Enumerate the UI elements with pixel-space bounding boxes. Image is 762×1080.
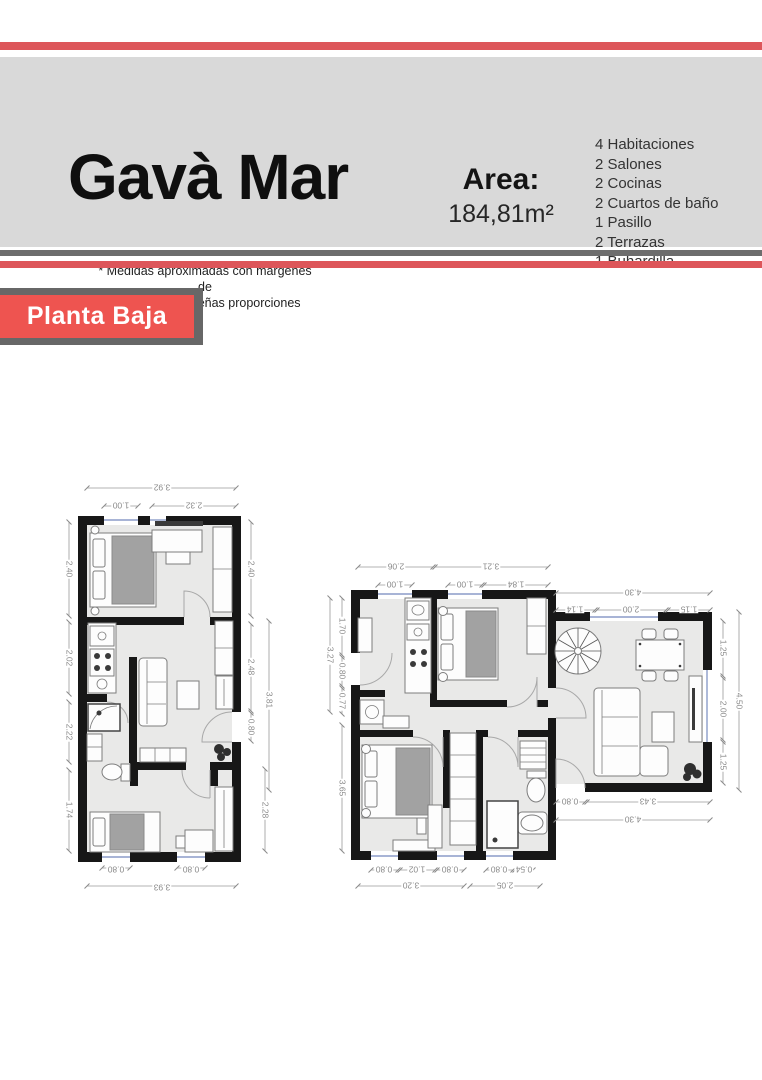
dim-label: 1.70 xyxy=(338,617,347,636)
dim-label: 0.80 xyxy=(338,662,347,681)
dim-label: 2.48 xyxy=(247,658,256,677)
gray-divider-bar xyxy=(0,250,762,256)
dim-label: 2.05 xyxy=(496,881,515,890)
dim-label: 1.25 xyxy=(719,753,728,772)
dim-label: 3.65 xyxy=(338,779,347,798)
dim-label: 1.15 xyxy=(680,605,699,614)
dim-label: 0.54 xyxy=(515,865,534,874)
dim-label: 1.14 xyxy=(566,605,585,614)
feature-item: 2 Salones xyxy=(595,157,718,173)
floor-label: Planta Baja xyxy=(27,302,167,331)
dim-label: 4.50 xyxy=(735,692,744,711)
flyer-page: Gavà Mar Area: 184,81m² 4 Habitaciones 2… xyxy=(0,0,762,1080)
dim-label: 4.30 xyxy=(624,588,643,597)
dim-label: 0.80 xyxy=(107,865,126,874)
bottom-red-bar xyxy=(0,261,762,268)
dim-label: 0.80 xyxy=(441,865,460,874)
dim-label: 2.02 xyxy=(65,649,74,668)
dim-label: 2.40 xyxy=(247,560,256,579)
area-value: 184,81m² xyxy=(436,200,566,229)
dim-label: 3.21 xyxy=(482,562,501,571)
dim-label: 1.25 xyxy=(719,639,728,658)
dim-label: 3.43 xyxy=(639,797,658,806)
dim-label: 0.80 xyxy=(561,797,580,806)
floor-label-badge: Planta Baja xyxy=(0,295,194,338)
dim-label: 1.74 xyxy=(65,801,74,820)
dim-label: 0.80 xyxy=(375,865,394,874)
dim-label: 1.02 xyxy=(408,865,427,874)
page-title: Gavà Mar xyxy=(68,145,348,209)
top-red-bar xyxy=(0,42,762,50)
feature-item: 1 Pasillo xyxy=(595,215,718,231)
header-panel: Gavà Mar Area: 184,81m² 4 Habitaciones 2… xyxy=(0,57,762,247)
plan-right-drawing xyxy=(330,567,739,886)
dim-label: 1.00 xyxy=(112,501,131,510)
dim-label: 1.84 xyxy=(507,580,526,589)
dim-label: 0.80 xyxy=(247,718,256,737)
feature-item: 2 Cuartos de baño xyxy=(595,196,718,212)
feature-item: 2 Cocinas xyxy=(595,176,718,192)
dim-label: 0.80 xyxy=(182,865,201,874)
dim-label: 2.32 xyxy=(185,501,204,510)
feature-item: 4 Habitaciones xyxy=(595,137,718,153)
dim-label: 2.00 xyxy=(719,700,728,719)
dim-label: 4.30 xyxy=(624,815,643,824)
dim-label: 0.77 xyxy=(338,692,347,711)
dim-label: 3.81 xyxy=(265,691,274,710)
dim-label: 2.28 xyxy=(261,801,270,820)
dim-label: 3.27 xyxy=(326,646,335,665)
feature-item: 2 Terrazas xyxy=(595,235,718,251)
dim-label: 3.20 xyxy=(402,881,421,890)
dim-label: 1.00 xyxy=(456,580,475,589)
dim-label: 2.00 xyxy=(622,605,641,614)
dim-label: 2.40 xyxy=(65,560,74,579)
dim-label: 2.06 xyxy=(387,562,406,571)
dim-label: 0.80 xyxy=(490,865,509,874)
dim-label: 1.00 xyxy=(386,580,405,589)
area-label: Area: xyxy=(443,163,559,197)
plan-left-drawing xyxy=(69,488,269,886)
dim-label: 3.92 xyxy=(153,483,172,492)
dim-label: 3.93 xyxy=(153,883,172,892)
dim-label: 2.22 xyxy=(65,723,74,742)
